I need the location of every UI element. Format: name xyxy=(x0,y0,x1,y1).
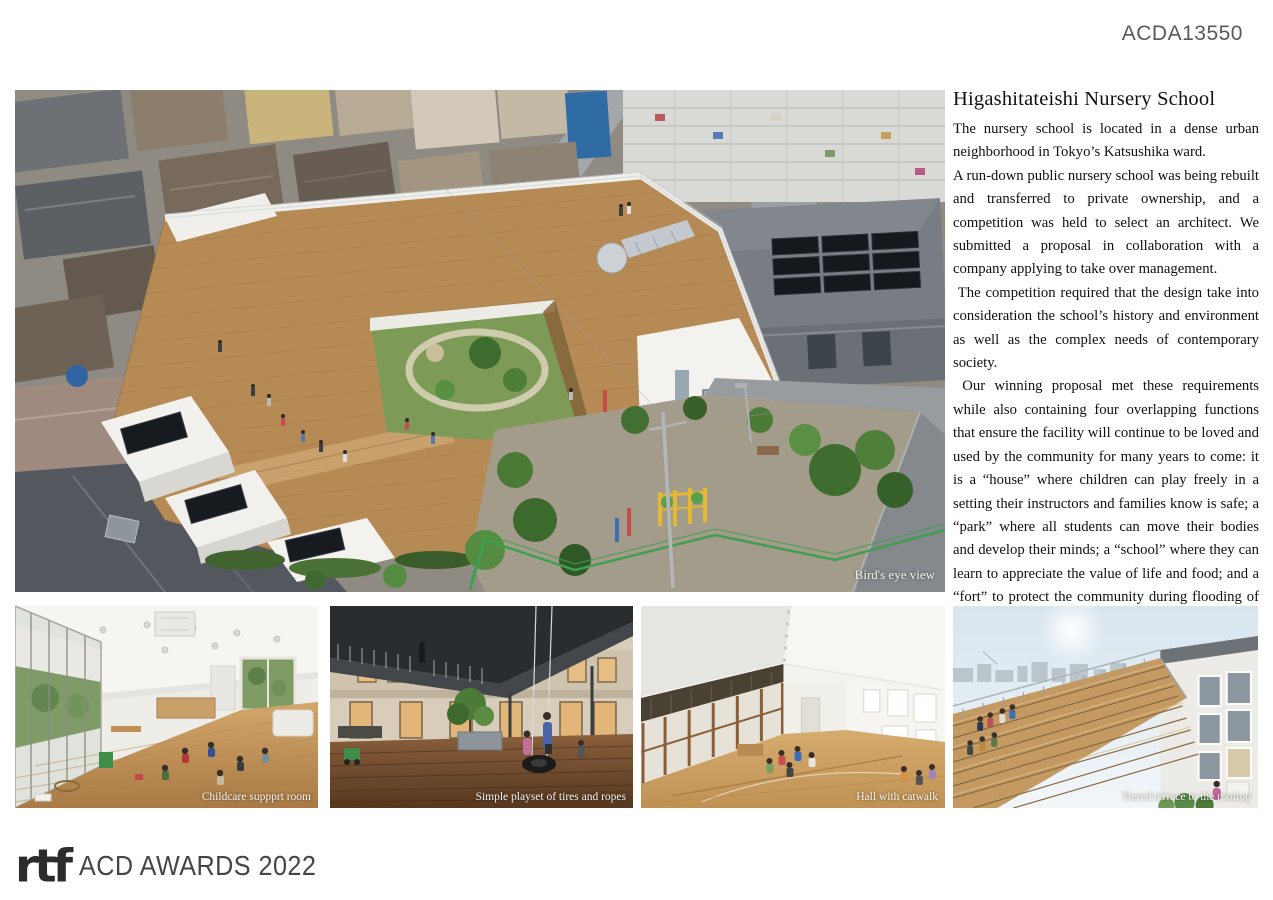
photo-hall: Hall with catwalk xyxy=(641,606,945,808)
birds-eye-photo-illustration xyxy=(15,90,945,592)
awards-wordmark: ACD AWARDS 2022 xyxy=(79,850,316,882)
playset-illustration xyxy=(330,606,633,808)
project-description: Higashitateishi Nursery School The nurse… xyxy=(953,88,1259,633)
project-paragraph-4: Our winning proposal met these requireme… xyxy=(953,375,1259,632)
document-id: ACDA13550 xyxy=(1122,22,1243,46)
hall-illustration xyxy=(641,606,945,808)
main-photo: Bird's eye view xyxy=(15,90,945,592)
project-paragraph-2: A run-down public nursery school was bei… xyxy=(953,165,1259,282)
playset-caption: Simple playset of tires and ropes xyxy=(476,791,626,803)
terrace-illustration xyxy=(953,606,1258,808)
footer-brand: rtf ACD AWARDS 2022 xyxy=(15,842,343,890)
childcare-room-illustration xyxy=(15,606,318,808)
project-paragraph-3: The competition required that the design… xyxy=(953,282,1259,376)
project-paragraph-1: The nursery school is located in a dense… xyxy=(953,118,1259,165)
photo-childcare-room: Childcare suppprt room xyxy=(15,606,318,808)
main-photo-caption: Bird's eye view xyxy=(855,567,935,583)
courtyard xyxy=(370,300,587,440)
photo-terrace: Tiered terrace to the rooftop xyxy=(953,606,1258,808)
childcare-room-caption: Childcare suppprt room xyxy=(202,791,311,803)
rtf-logo-mark: rtf xyxy=(15,843,69,888)
award-presentation-page: ACDA13550 xyxy=(0,0,1273,900)
terrace-caption: Tiered terrace to the rooftop xyxy=(1122,791,1251,803)
hall-caption: Hall with catwalk xyxy=(856,791,938,803)
project-title: Higashitateishi Nursery School xyxy=(953,88,1259,111)
photo-playset: Simple playset of tires and ropes xyxy=(330,606,633,808)
